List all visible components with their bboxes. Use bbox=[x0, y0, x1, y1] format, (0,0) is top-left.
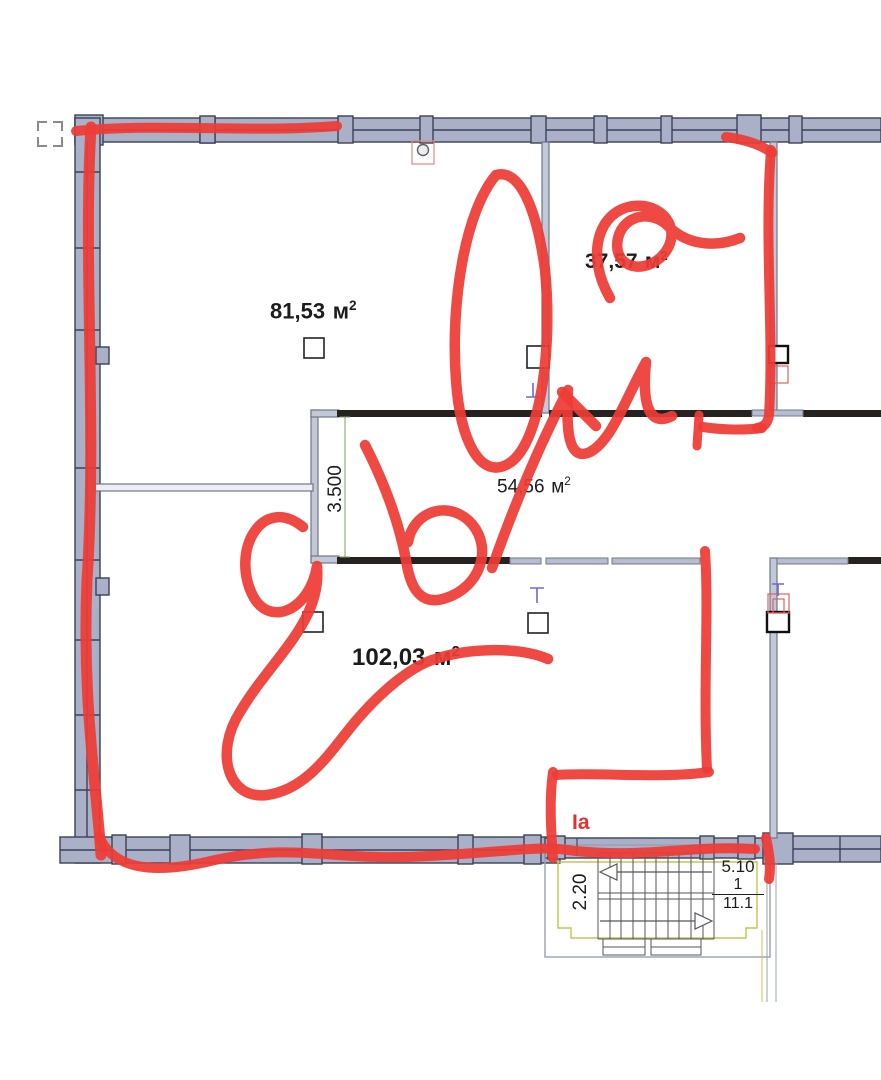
stair-flight-label: 1 bbox=[712, 876, 764, 895]
area-unit: м bbox=[434, 644, 452, 671]
area-unit: м bbox=[333, 298, 349, 323]
floor-plan-screenshot: { "plan": { "unit": { "base": "м", "exp"… bbox=[0, 0, 881, 1080]
room-area-label-102: 102,03м2 bbox=[352, 644, 460, 672]
plan-drawing-layer bbox=[0, 0, 881, 1080]
corridor-dark-walls bbox=[337, 410, 881, 564]
room-area-label-81: 81,53м2 bbox=[270, 298, 357, 324]
stair-section-continuation bbox=[762, 862, 776, 1002]
area-unit-exp: 2 bbox=[349, 298, 357, 313]
area-unit-exp: 2 bbox=[564, 475, 571, 488]
top-exterior-wall bbox=[75, 115, 881, 145]
area-value: 81,53 bbox=[270, 298, 325, 323]
area-value: 102,03 bbox=[352, 644, 425, 671]
area-value: 54,56 bbox=[497, 476, 545, 497]
stair-entry-steps bbox=[603, 939, 701, 955]
area-unit: м bbox=[551, 476, 564, 497]
area-unit-exp: 2 bbox=[660, 248, 667, 263]
corridor-area-label: 54,56м2 bbox=[497, 475, 571, 498]
room-area-label-37: 37,57м2 bbox=[585, 248, 668, 274]
crop-mark-icon bbox=[38, 122, 62, 146]
stair-width-dimension: 2.20 bbox=[570, 856, 592, 928]
stair-run-label: 5.10 bbox=[712, 857, 764, 877]
corridor-width-dimension: 3.500 bbox=[325, 453, 347, 525]
interior-partitions bbox=[95, 142, 777, 838]
area-value: 37,57 bbox=[585, 250, 638, 273]
stair-total-label: 11.1 bbox=[712, 895, 764, 913]
section-label: Ia bbox=[572, 811, 590, 835]
outlet-icon bbox=[412, 141, 434, 164]
area-unit-exp: 2 bbox=[452, 644, 460, 660]
area-unit: м bbox=[645, 250, 661, 273]
plan-drawing bbox=[0, 0, 881, 1080]
